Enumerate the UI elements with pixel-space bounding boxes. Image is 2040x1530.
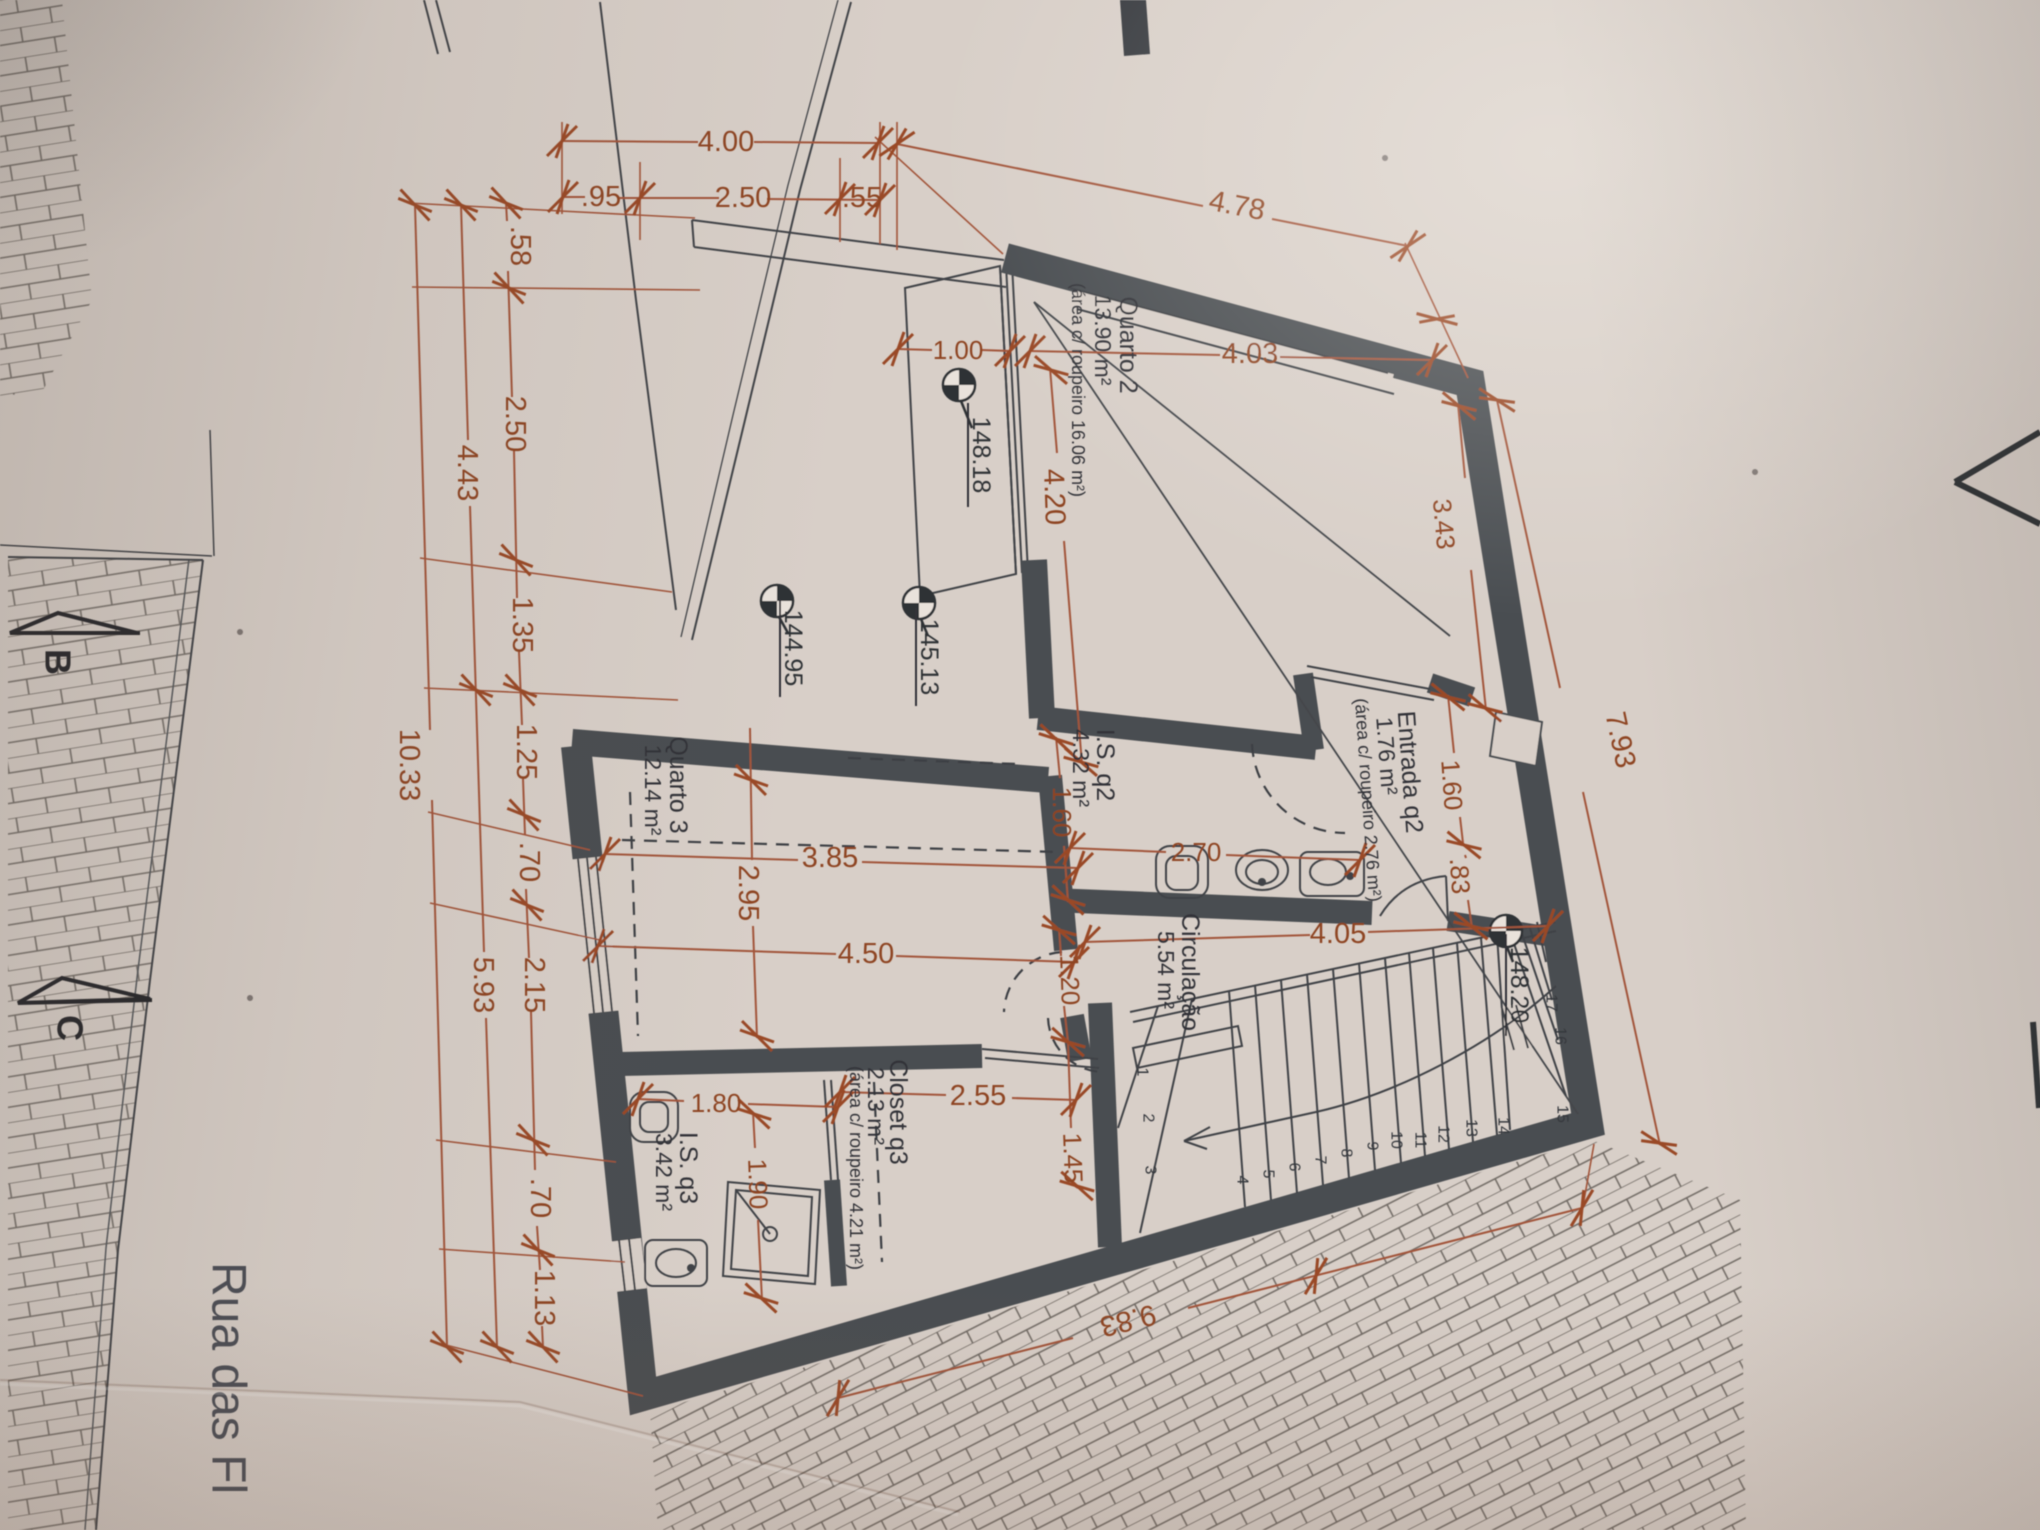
dim-2-50-top: 2.50 [715,182,771,214]
quarto2-note: (área c/ roupeiro 16.06 m²) [1068,283,1088,497]
balcony-lines [692,220,1028,596]
entrada-door [1380,876,1448,921]
dim-4-05: 4.05 [1310,918,1366,950]
stair-2: 2 [1140,1114,1157,1123]
dim-1-13: 1.13 [528,1270,560,1326]
floor-plan-photo: B C Rua das Fl [0,0,2040,1530]
stair-17: 17 [1543,994,1560,1012]
circulacao-name: Circulação [1176,913,1204,1031]
isq3-area: 3.42 m² [651,1133,677,1211]
dim-4-00: 4.00 [698,126,754,158]
sheet-mark [1120,0,1150,56]
stair-8: 8 [1338,1149,1355,1158]
dim-4-50: 4.50 [838,938,894,970]
dim-1-60-entrada: 1.60 [1435,759,1468,812]
circulacao-area: 5.54 m² [1153,931,1179,1009]
level-148-20: 148.20 [1505,947,1533,1023]
dim-1-90: 1.90 [742,1158,774,1210]
dim-4-43: 4.43 [451,445,483,501]
corner-hatch [0,0,92,396]
dim-4-78: 4.78 [1206,185,1268,227]
dim-1-00: 1.00 [933,335,984,365]
stair-14: 14 [1495,1117,1512,1135]
quarto3-name: Quarto 3 [664,736,692,833]
section-b-label: B [38,649,79,675]
level-144-95: 144.95 [779,610,807,686]
dim-2-95: 2.95 [732,865,764,921]
dim-3-85: 3.85 [802,842,858,874]
closet-note: (área c/ roupeiro 4.21 m²) [846,1066,866,1270]
dim-10-33: 10.33 [393,729,425,802]
stair-3: 3 [1142,1166,1159,1175]
dim-2-70: 2.70 [1171,837,1222,867]
dim-1-45: 1.45 [1057,1132,1089,1184]
dim-0-70-a: .70 [513,842,545,882]
dim-5-93: 5.93 [467,957,499,1013]
isq3-name: I.S. q3 [674,1132,702,1204]
dim-1-80: 1.80 [691,1088,742,1118]
elevation-markers: 148.18 144.95 145.13 148.20 [761,369,1533,1036]
stair-10: 10 [1388,1131,1405,1149]
street-name: Rua das Fl [202,1262,255,1494]
dim-1-25: 1.25 [510,724,542,780]
isq2-area: 4.32 m² [1068,729,1094,807]
edge-marks [1955,432,2040,1108]
level-145-13: 145.13 [915,619,943,695]
dim-2-50-left: 2.50 [499,396,531,452]
dim-4-20: 4.20 [1037,468,1071,526]
stair-13: 13 [1463,1119,1480,1137]
stair-4: 4 [1234,1176,1251,1185]
stair-5: 5 [1260,1170,1277,1179]
dim-0-70-b: .70 [524,1178,556,1218]
quarto2-area: 13.90 m² [1090,295,1116,386]
stair-12: 12 [1435,1125,1452,1143]
dim-3-43: 3.43 [1427,497,1461,550]
stair-16: 16 [1552,1027,1569,1045]
diagonal-lines [1034,302,1578,1114]
floor-plan-drawing: B C Rua das Fl [0,0,2040,1530]
dim-2-55: 2.55 [950,1080,1006,1112]
dim-1-35: 1.35 [506,597,538,653]
quarto3-area: 12.14 m² [640,745,666,836]
dim-0-58: .58 [504,226,536,266]
dim-7-93: 7.93 [1598,709,1641,771]
stair-6: 6 [1286,1163,1303,1172]
dim-2-15: 2.15 [518,957,550,1013]
stair-9: 9 [1364,1142,1381,1151]
quarto2-name: Quarto 2 [1114,296,1142,393]
stair-15: 15 [1554,1105,1571,1123]
stair-7: 7 [1312,1156,1329,1165]
section-c-label: C [50,1015,91,1041]
dim-0-95: .95 [581,181,621,213]
level-148-18: 148.18 [967,417,995,493]
isq2-name: I.S. q2 [1091,729,1119,801]
stair-1: 1 [1134,1068,1151,1077]
stair-11: 11 [1412,1132,1429,1149]
dim-1-20: 1.20 [1054,954,1086,1006]
dim-4-03: 4.03 [1222,338,1278,370]
dim-0-55: .55 [842,182,882,214]
dim-0-83: .83 [1444,857,1476,895]
